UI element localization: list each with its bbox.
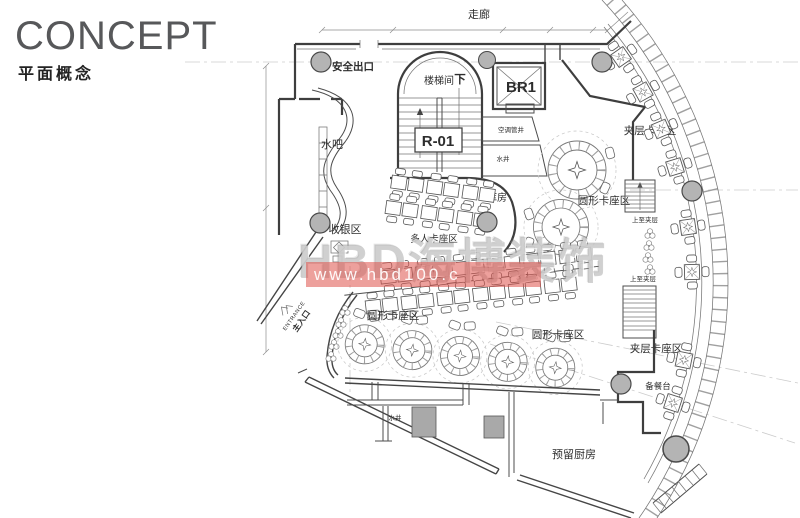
booth-chair: [605, 147, 616, 160]
column: [592, 52, 612, 72]
label-shaft-btm: 水井: [389, 413, 403, 422]
label-water-bar: 水吧: [321, 138, 343, 151]
service-shafts: [482, 117, 547, 176]
concept-sheet: CONCEPT 平面概念: [0, 0, 800, 518]
round-booth-small: [478, 323, 539, 392]
label-up-mezz-b: 上至夹层: [630, 274, 657, 283]
table-row: [379, 260, 414, 292]
table-row: [486, 248, 521, 280]
table-row: [522, 244, 557, 276]
floor-plan-drawing: 走廊 安全出口: [0, 0, 800, 518]
facade-arc-band: [602, 0, 728, 518]
mezz-stairs-upper: [625, 180, 655, 212]
table-row: [472, 278, 507, 310]
table-row: [507, 274, 542, 306]
label-corridor: 走廊: [468, 7, 490, 21]
column: [611, 374, 631, 394]
label-down: 下: [454, 73, 466, 86]
column: [477, 212, 497, 232]
stair-up-arrow: [417, 108, 423, 115]
kitchen-walls: [298, 369, 634, 518]
table-row: [415, 256, 450, 288]
booth-chair: [523, 207, 534, 220]
table-row: [436, 282, 471, 314]
mezz-stairs-lower: [623, 286, 656, 338]
column: [310, 213, 330, 233]
fire-ladder: [653, 464, 707, 513]
room-tag-r01: R-01: [422, 133, 455, 150]
table-row: [420, 198, 456, 231]
label-hvac-shaft: 空调管井: [498, 125, 525, 134]
table-row: [384, 193, 420, 226]
label-safety-exit: 安全出口: [332, 60, 374, 73]
mezz-plants: [643, 229, 655, 275]
water-bar-counter: [312, 88, 353, 233]
label-round-booth-right: 圆形卡座区: [532, 328, 585, 341]
shaft-block: [412, 407, 436, 437]
shaft-block: [484, 416, 504, 438]
table-4seat: [669, 208, 707, 246]
column: [682, 181, 702, 201]
column: [663, 436, 689, 462]
table-row: [451, 252, 486, 284]
label-multi-booth: 多人卡座区: [410, 233, 458, 245]
label-shaft-top: 水井: [497, 154, 511, 163]
label-cashier: 收银区: [329, 222, 362, 236]
table-row: [543, 270, 578, 302]
label-prep-counter: 备餐台: [645, 381, 671, 391]
label-up-mezz-a: 上至夹层: [632, 215, 659, 224]
label-kitchen: 预留厨房: [552, 448, 596, 461]
label-round-booth-left: 圆形卡座区: [367, 309, 420, 322]
table-4seat: [675, 255, 710, 290]
round-booth-small: [430, 317, 491, 386]
label-round-booth-mid: 圆形卡座区: [578, 194, 631, 207]
label-stair-room: 楼梯间: [424, 74, 454, 87]
column: [479, 52, 496, 69]
room-tag-br1: BR1: [506, 79, 536, 96]
column: [311, 52, 331, 72]
